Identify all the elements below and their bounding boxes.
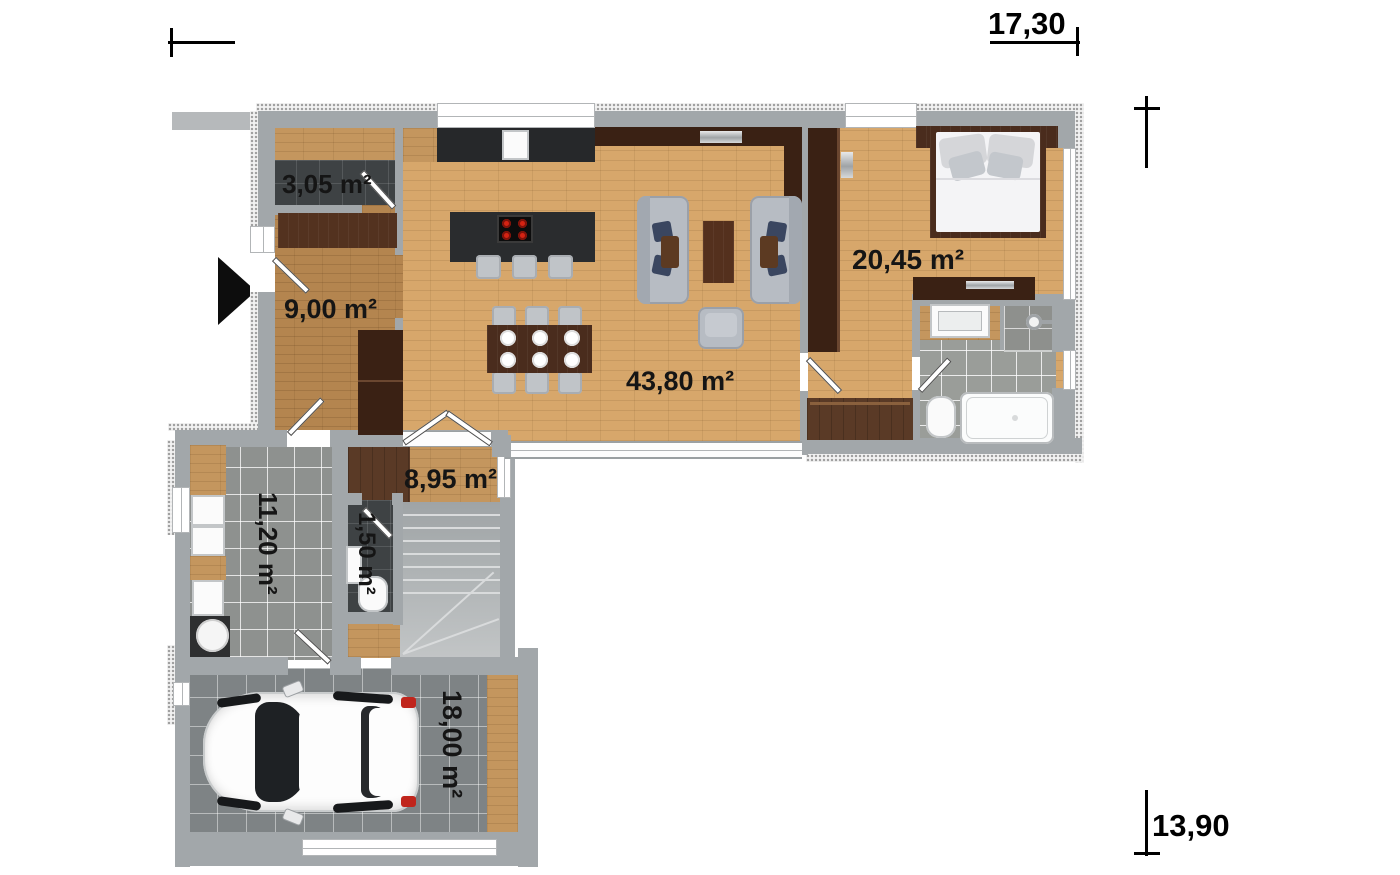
garage-area-label: 18,00 m² bbox=[436, 690, 467, 798]
width-dimension-tick bbox=[1076, 27, 1079, 56]
dining-chair bbox=[492, 371, 516, 394]
kitchen-sink bbox=[502, 130, 529, 160]
stair-landing-floor bbox=[348, 620, 400, 658]
utility-appliance bbox=[192, 580, 224, 616]
exterior-wall-hatch-bottom bbox=[806, 454, 1082, 462]
height-dimension-start-tick bbox=[1134, 107, 1160, 110]
bar-stool bbox=[512, 255, 537, 279]
bar-stool bbox=[476, 255, 501, 279]
hall-cabinet bbox=[358, 330, 403, 435]
utility-area-label: 11,20 m² bbox=[252, 492, 283, 595]
armchair bbox=[698, 307, 744, 349]
bed-pillow-small bbox=[986, 151, 1024, 181]
garage-door bbox=[302, 839, 497, 856]
wall-garage-north-1 bbox=[175, 657, 288, 675]
wall-office-wc-left bbox=[344, 493, 362, 505]
living-top-window bbox=[845, 103, 917, 128]
stair-winder-line bbox=[403, 618, 500, 655]
utility-counter-top bbox=[190, 445, 226, 495]
height-dimension-end-tick bbox=[1134, 852, 1160, 855]
storage-area-label: 3,05 m² bbox=[282, 169, 372, 200]
bar-stool bbox=[548, 255, 573, 279]
wall-bathroom-left-lower bbox=[912, 390, 920, 452]
coffee-table bbox=[703, 221, 734, 283]
utility-counter-mid bbox=[190, 556, 226, 580]
bathroom-vanity bbox=[930, 304, 990, 338]
hall-wardrobe bbox=[278, 213, 397, 248]
entrance-door-gap bbox=[250, 253, 275, 292]
dim-start-line-top-left bbox=[168, 41, 235, 44]
height-dimension-label: 13,90 bbox=[1152, 808, 1230, 844]
garage-window bbox=[173, 682, 190, 706]
storage-closet bbox=[273, 124, 397, 164]
car bbox=[203, 692, 419, 812]
stair-winder-line bbox=[402, 572, 494, 655]
wall-wc-bottom bbox=[344, 612, 403, 624]
wall-right-mid bbox=[1052, 298, 1075, 352]
toilet bbox=[926, 396, 956, 438]
car-taillight bbox=[401, 796, 416, 807]
cooktop bbox=[497, 215, 533, 243]
floor-plan: 17,30 13,90 bbox=[0, 0, 1400, 875]
bedroom-wardrobe bbox=[808, 128, 840, 352]
living-terrace-glass-door bbox=[505, 441, 802, 459]
bathtub bbox=[960, 392, 1054, 444]
utility-window bbox=[172, 487, 190, 533]
bedroom-bench bbox=[841, 152, 853, 178]
dining-chair bbox=[525, 371, 549, 394]
wc-area-label: 1,50 m² bbox=[352, 512, 380, 595]
wall-wc-east bbox=[393, 500, 403, 625]
shower-partition bbox=[1000, 303, 1004, 350]
sofa-throw bbox=[661, 236, 679, 268]
living-room-floor bbox=[396, 120, 808, 445]
bed-mattress bbox=[936, 132, 1040, 232]
shower-arm bbox=[1040, 320, 1052, 324]
dining-table bbox=[487, 325, 592, 373]
dryer bbox=[191, 526, 225, 556]
living-area-label: 43,80 m² bbox=[626, 366, 734, 397]
sideboard bbox=[595, 127, 795, 146]
bathtub-drain bbox=[1012, 415, 1018, 421]
wall-apron-top-left bbox=[172, 112, 258, 130]
sideboard-shelf bbox=[700, 131, 742, 143]
dining-chair bbox=[558, 371, 582, 394]
hallway-area-label: 9,00 m² bbox=[284, 294, 377, 325]
height-dimension-line bbox=[1145, 790, 1148, 856]
tv bbox=[966, 281, 1014, 289]
hall-living-opening bbox=[395, 255, 403, 318]
wall-garage-north-3 bbox=[391, 657, 538, 675]
wall-garage-north-2 bbox=[330, 657, 361, 675]
sofa-right bbox=[750, 196, 802, 304]
sofa-left bbox=[637, 196, 689, 304]
kitchen-counter-wood bbox=[403, 128, 437, 162]
laundry-basket bbox=[196, 619, 229, 652]
width-dimension-line bbox=[990, 41, 1080, 44]
wall-bathroom-left-upper bbox=[912, 294, 920, 357]
washing-machine bbox=[191, 495, 225, 526]
staircase bbox=[400, 502, 500, 658]
bathroom-door-gap bbox=[912, 357, 920, 390]
dim-start-tick-top-left bbox=[170, 28, 173, 57]
width-dimension-label: 17,30 bbox=[988, 6, 1066, 42]
wall-pillar-terrace bbox=[492, 435, 511, 457]
garage-wood-strip bbox=[487, 670, 518, 838]
bedroom-area-label: 20,45 m² bbox=[852, 244, 964, 276]
entry-side-window bbox=[250, 226, 275, 253]
exterior-wall-hatch-right bbox=[1075, 103, 1084, 463]
office-area-label: 8,95 m² bbox=[404, 464, 497, 495]
kitchen-window bbox=[437, 103, 595, 128]
sofa-throw bbox=[760, 236, 778, 268]
car-taillight bbox=[401, 697, 416, 708]
bathroom-window bbox=[1063, 350, 1076, 390]
bedroom-window bbox=[1063, 148, 1076, 300]
bedroom-sideboard bbox=[807, 398, 913, 440]
